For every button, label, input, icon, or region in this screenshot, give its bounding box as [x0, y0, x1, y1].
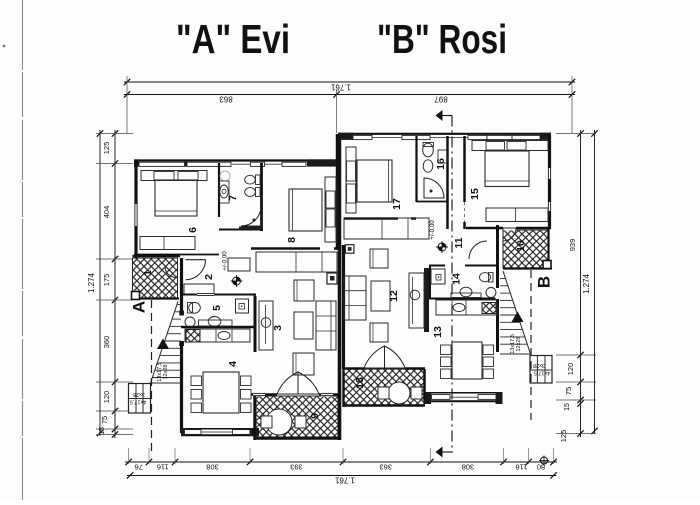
svg-text:1.274: 1.274 — [87, 272, 96, 293]
svg-text:3x28: 3x28 — [533, 362, 545, 368]
svg-text:116: 116 — [515, 463, 527, 472]
svg-text:2: 2 — [203, 274, 215, 280]
svg-text:393: 393 — [290, 463, 303, 472]
svg-text:16: 16 — [435, 158, 447, 170]
svg-text:14: 14 — [451, 273, 463, 285]
svg-text:363: 363 — [379, 463, 392, 472]
svg-text:8: 8 — [286, 237, 298, 243]
svg-text:4x17,5: 4x17,5 — [534, 370, 551, 376]
svg-text:404: 404 — [102, 206, 111, 219]
svg-text:3: 3 — [272, 325, 284, 331]
svg-text:12x28: 12x28 — [163, 365, 169, 380]
svg-text:18: 18 — [354, 377, 366, 389]
svg-text:308: 308 — [462, 463, 475, 472]
svg-text:125: 125 — [102, 142, 111, 155]
svg-text:9: 9 — [309, 413, 321, 419]
svg-text:+/-0,00: +/-0,00 — [429, 220, 436, 240]
svg-text:308: 308 — [206, 463, 219, 472]
svg-text:3x28: 3x28 — [133, 391, 145, 397]
svg-text:175: 175 — [102, 274, 111, 287]
svg-text:11: 11 — [453, 237, 465, 248]
svg-text:863: 863 — [219, 95, 233, 104]
svg-text:1.274: 1.274 — [582, 273, 591, 294]
svg-text:15: 15 — [564, 403, 571, 411]
svg-text:1.761: 1.761 — [330, 83, 351, 92]
svg-text:"B" Rosi: "B" Rosi — [377, 16, 507, 62]
svg-text:116: 116 — [157, 463, 169, 472]
svg-text:1: 1 — [142, 270, 154, 276]
svg-text:360: 360 — [102, 336, 111, 349]
svg-text:1.761: 1.761 — [334, 476, 355, 485]
svg-text:"A" Evi: "A" Evi — [176, 16, 290, 62]
svg-text:15: 15 — [469, 188, 481, 200]
svg-text:76: 76 — [135, 463, 143, 472]
svg-text:A: A — [130, 301, 149, 313]
svg-text:7: 7 — [227, 195, 239, 201]
svg-text:12: 12 — [388, 290, 400, 302]
svg-text:+/-0,00: +/-0,00 — [222, 251, 229, 271]
svg-text:B: B — [535, 276, 554, 288]
svg-text:6: 6 — [187, 227, 199, 233]
svg-text:897: 897 — [434, 95, 448, 104]
svg-text:12x28: 12x28 — [516, 337, 522, 352]
svg-text:4: 4 — [227, 361, 239, 367]
svg-text:10: 10 — [515, 240, 527, 252]
svg-text:75: 75 — [100, 416, 109, 424]
svg-text:75: 75 — [564, 387, 573, 395]
svg-text:120: 120 — [102, 391, 111, 404]
svg-text:5: 5 — [211, 305, 223, 311]
svg-text:13: 13 — [432, 326, 444, 338]
svg-text:939: 939 — [568, 239, 577, 252]
svg-text:17: 17 — [391, 198, 403, 210]
svg-text:120: 120 — [566, 363, 575, 376]
svg-text:4x17,5: 4x17,5 — [130, 399, 147, 405]
svg-text:125: 125 — [559, 430, 568, 443]
